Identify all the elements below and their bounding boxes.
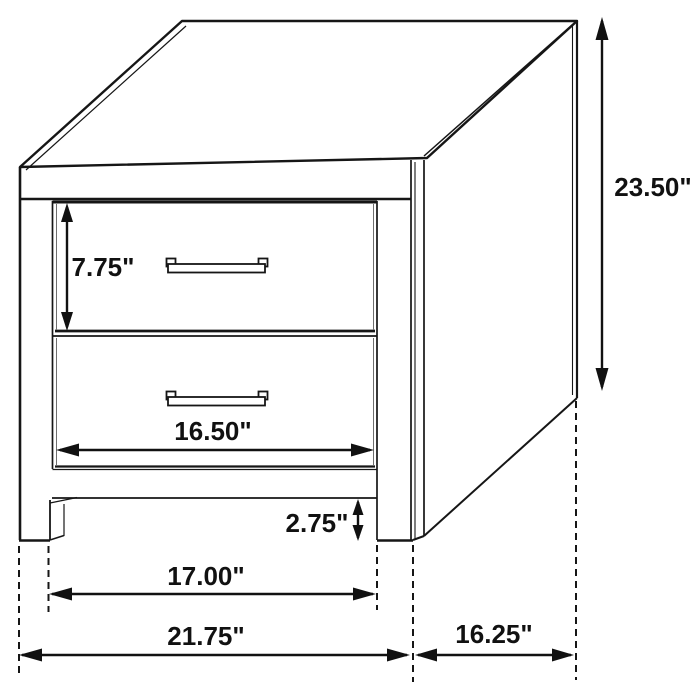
- nightstand-line-drawing: [0, 0, 700, 700]
- dim-arrow-foot-clearance: [353, 499, 364, 541]
- drawer-2-handle: [167, 392, 268, 406]
- dimension-label-inner-width: 17.00": [167, 563, 244, 589]
- dimension-label-foot-clearance: 2.75": [286, 510, 349, 536]
- dimension-label-overall-height: 23.50": [614, 174, 691, 200]
- dimension-label-drawer-height: 7.75": [72, 254, 135, 280]
- dim-arrow-overall-depth: [415, 649, 574, 662]
- drawer-1-handle: [167, 259, 268, 273]
- dim-arrow-overall-height: [596, 17, 609, 391]
- dimension-label-drawer-width: 16.50": [174, 418, 251, 444]
- dimension-label-overall-width: 21.75": [167, 623, 244, 649]
- furniture-dimension-diagram: 7.75" 23.50" 16.50" 2.75" 17.00" 21.75" …: [0, 0, 700, 700]
- dimension-label-overall-depth: 16.25": [455, 621, 532, 647]
